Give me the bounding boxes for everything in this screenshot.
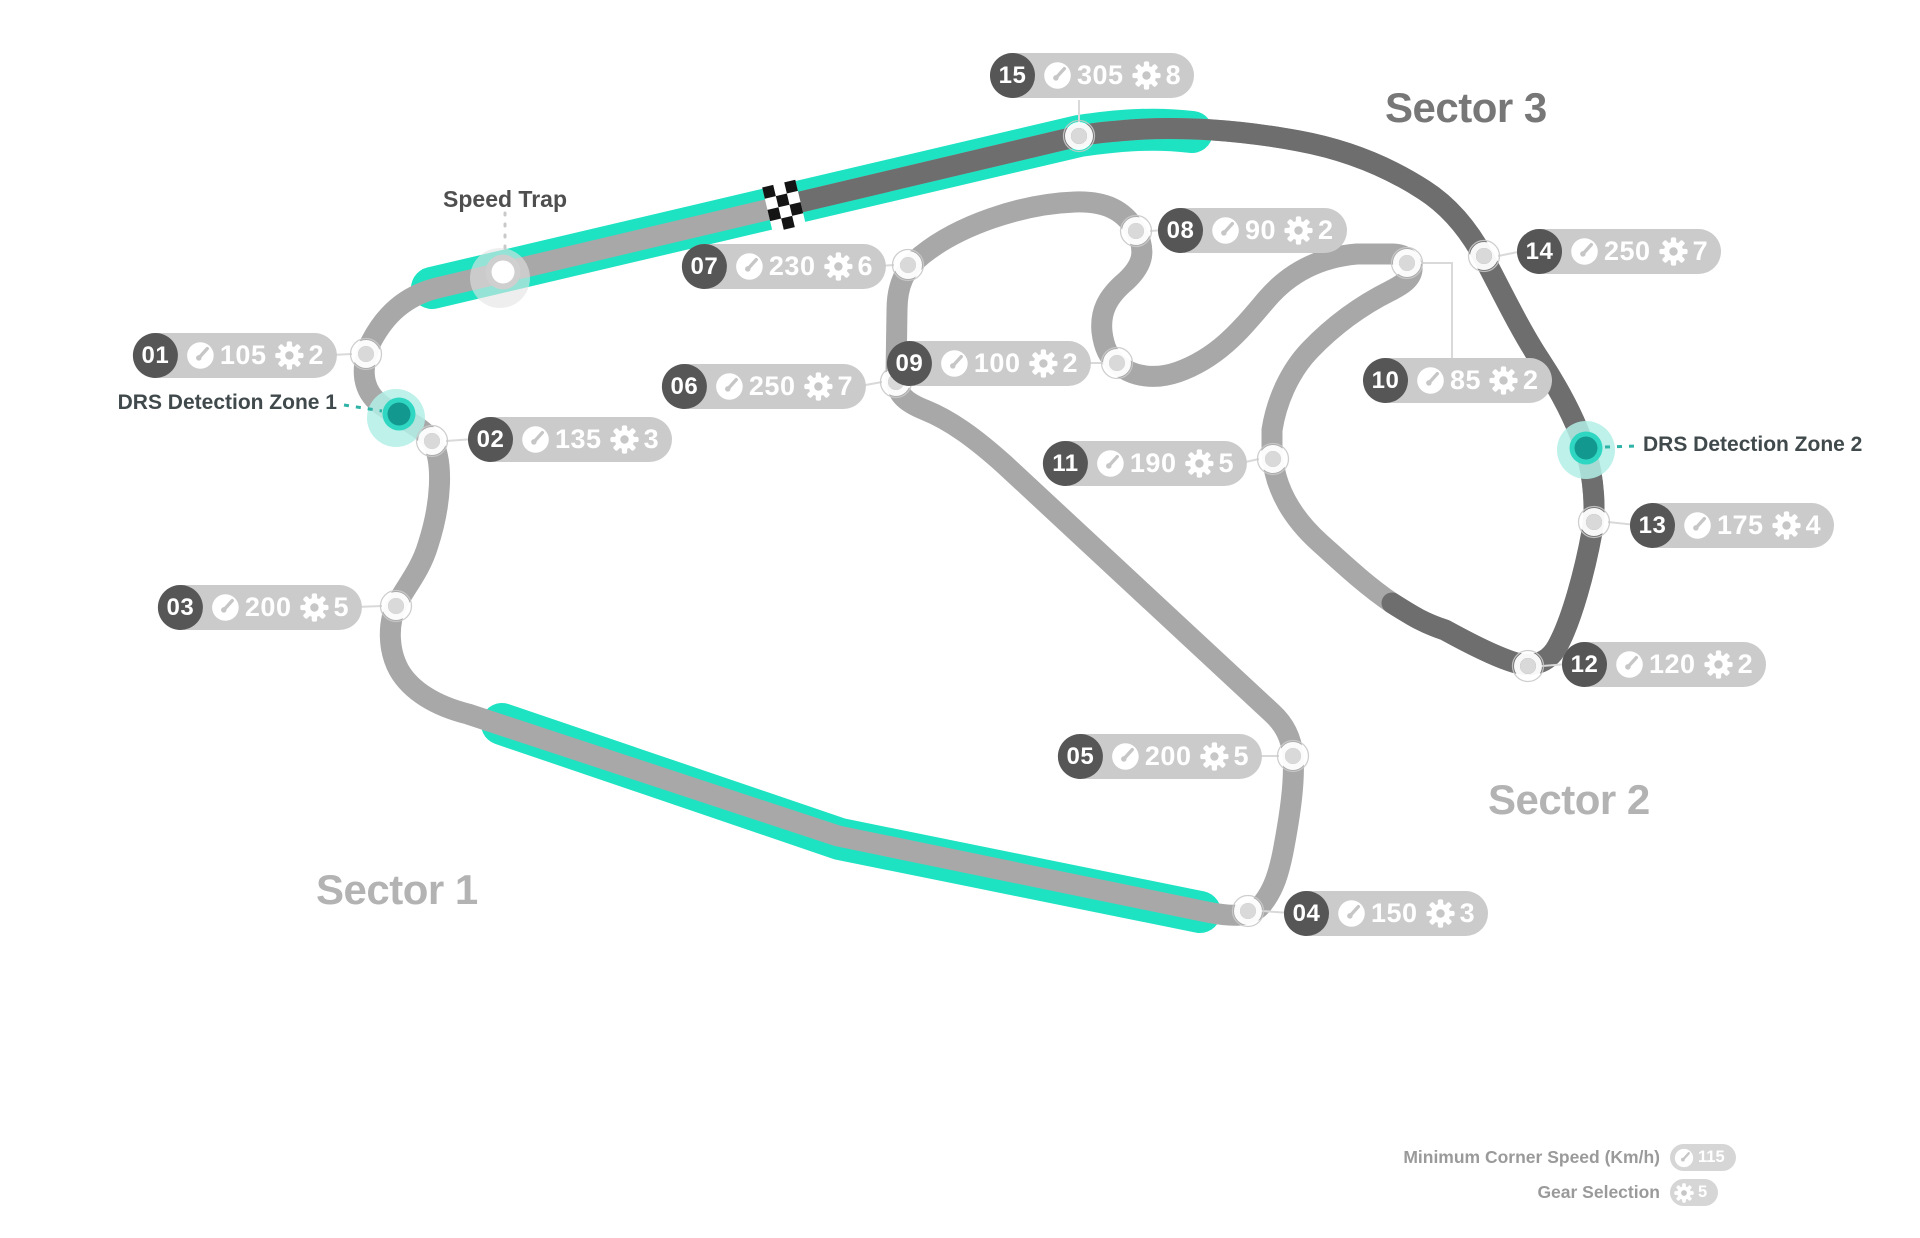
corner-number: 03 — [158, 585, 203, 630]
corner-number: 06 — [662, 364, 707, 409]
speedometer-icon — [1211, 216, 1240, 245]
corner-min-speed: 250 — [749, 371, 796, 402]
corner-min-speed: 150 — [1371, 898, 1418, 929]
corner-number: 02 — [468, 417, 513, 462]
corner-min-speed: 90 — [1245, 215, 1276, 246]
corner-min-speed: 105 — [220, 340, 267, 371]
corner-gear: 5 — [1218, 448, 1234, 479]
gear-icon — [803, 372, 832, 401]
corner-label-03: 032005 — [158, 585, 362, 630]
speedometer-icon — [735, 252, 764, 281]
legend-value: 5 — [1698, 1183, 1707, 1202]
speedometer-icon — [1111, 742, 1140, 771]
corner-gear: 7 — [1693, 236, 1709, 267]
corner-min-speed: 120 — [1649, 649, 1696, 680]
corner-number: 08 — [1158, 208, 1203, 253]
corner-number: 12 — [1562, 642, 1607, 687]
corner-label-10: 10852 — [1363, 358, 1552, 403]
speedometer-icon — [1337, 899, 1366, 928]
corner-number: 01 — [133, 333, 178, 378]
labels-layer: Sector 1 Sector 2 Sector 3 Speed Trap DR… — [0, 0, 1920, 1238]
corner-label-06: 062507 — [662, 364, 866, 409]
corner-gear: 8 — [1166, 60, 1182, 91]
corner-gear: 4 — [1806, 510, 1822, 541]
legend-pill: 5 — [1670, 1179, 1718, 1206]
corner-number: 07 — [682, 244, 727, 289]
corner-min-speed: 305 — [1077, 60, 1124, 91]
legend-value: 115 — [1698, 1148, 1725, 1167]
corner-label-14: 142507 — [1517, 229, 1721, 274]
corner-min-speed: 250 — [1604, 236, 1651, 267]
sector-1-label: Sector 1 — [316, 866, 478, 914]
gear-icon — [610, 425, 639, 454]
corner-label-12: 121202 — [1562, 642, 1766, 687]
speedometer-icon — [1043, 61, 1072, 90]
speed-trap-label: Speed Trap — [443, 186, 567, 213]
gear-icon — [1028, 349, 1057, 378]
speedometer-icon — [521, 425, 550, 454]
corner-gear: 2 — [1062, 348, 1078, 379]
corner-label-08: 08902 — [1158, 208, 1347, 253]
speedometer-icon — [1615, 650, 1644, 679]
legend-pill: 115 — [1670, 1144, 1736, 1171]
corner-min-speed: 175 — [1717, 510, 1764, 541]
gear-icon — [1489, 366, 1518, 395]
corner-label-01: 011052 — [133, 333, 337, 378]
sector-3-label: Sector 3 — [1385, 84, 1547, 132]
speedometer-icon — [940, 349, 969, 378]
corner-gear: 2 — [1318, 215, 1334, 246]
corner-number: 05 — [1058, 734, 1103, 779]
corner-number: 11 — [1043, 441, 1088, 486]
gear-icon — [1659, 237, 1688, 266]
corner-gear: 2 — [308, 340, 324, 371]
corner-min-speed: 100 — [974, 348, 1021, 379]
corner-min-speed: 230 — [769, 251, 816, 282]
corner-label-02: 021353 — [468, 417, 672, 462]
corner-min-speed: 85 — [1450, 365, 1481, 396]
legend-row: Gear Selection5 — [1160, 1179, 1740, 1206]
corner-label-05: 052005 — [1058, 734, 1262, 779]
legend-label: Gear Selection — [1537, 1182, 1660, 1203]
corner-min-speed: 200 — [245, 592, 292, 623]
corner-gear: 5 — [1233, 741, 1249, 772]
speedometer-icon — [186, 341, 215, 370]
sector-2-label: Sector 2 — [1488, 776, 1650, 824]
corner-min-speed: 190 — [1130, 448, 1177, 479]
speedometer-icon — [715, 372, 744, 401]
corner-gear: 2 — [1738, 649, 1754, 680]
legend-row: Minimum Corner Speed (Km/h)115 — [1160, 1144, 1740, 1171]
gear-icon — [1426, 899, 1455, 928]
gear-icon — [274, 341, 303, 370]
corner-label-11: 111905 — [1043, 441, 1247, 486]
corner-gear: 2 — [1523, 365, 1539, 396]
gear-icon — [1132, 61, 1161, 90]
corner-gear: 7 — [837, 371, 853, 402]
gear-icon — [299, 593, 328, 622]
corner-number: 10 — [1363, 358, 1408, 403]
drs-zone-1-label: DRS Detection Zone 1 — [118, 391, 337, 415]
corner-gear: 3 — [644, 424, 660, 455]
speedometer-icon — [1674, 1148, 1694, 1168]
speedometer-icon — [1570, 237, 1599, 266]
legend-label: Minimum Corner Speed (Km/h) — [1403, 1147, 1660, 1168]
legend: Minimum Corner Speed (Km/h)115Gear Selec… — [1160, 1144, 1740, 1206]
corner-min-speed: 200 — [1145, 741, 1192, 772]
corner-label-04: 041503 — [1284, 891, 1488, 936]
gear-icon — [1704, 650, 1733, 679]
corner-gear: 6 — [857, 251, 873, 282]
corner-label-15: 153058 — [990, 53, 1194, 98]
gear-icon — [1674, 1183, 1694, 1203]
corner-number: 14 — [1517, 229, 1562, 274]
drs-zone-2-label: DRS Detection Zone 2 — [1643, 433, 1862, 457]
speedometer-icon — [1683, 511, 1712, 540]
corner-gear: 5 — [333, 592, 349, 623]
speedometer-icon — [1416, 366, 1445, 395]
corner-number: 09 — [887, 341, 932, 386]
corner-gear: 3 — [1460, 898, 1476, 929]
corner-number: 04 — [1284, 891, 1329, 936]
speedometer-icon — [1096, 449, 1125, 478]
corner-label-07: 072306 — [682, 244, 886, 289]
gear-icon — [823, 252, 852, 281]
track-map: Sector 1 Sector 2 Sector 3 Speed Trap DR… — [0, 0, 1920, 1238]
corner-label-09: 091002 — [887, 341, 1091, 386]
gear-icon — [1284, 216, 1313, 245]
gear-icon — [1184, 449, 1213, 478]
corner-min-speed: 135 — [555, 424, 602, 455]
gear-icon — [1772, 511, 1801, 540]
speedometer-icon — [211, 593, 240, 622]
corner-label-13: 131754 — [1630, 503, 1834, 548]
gear-icon — [1199, 742, 1228, 771]
corner-number: 15 — [990, 53, 1035, 98]
corner-number: 13 — [1630, 503, 1675, 548]
